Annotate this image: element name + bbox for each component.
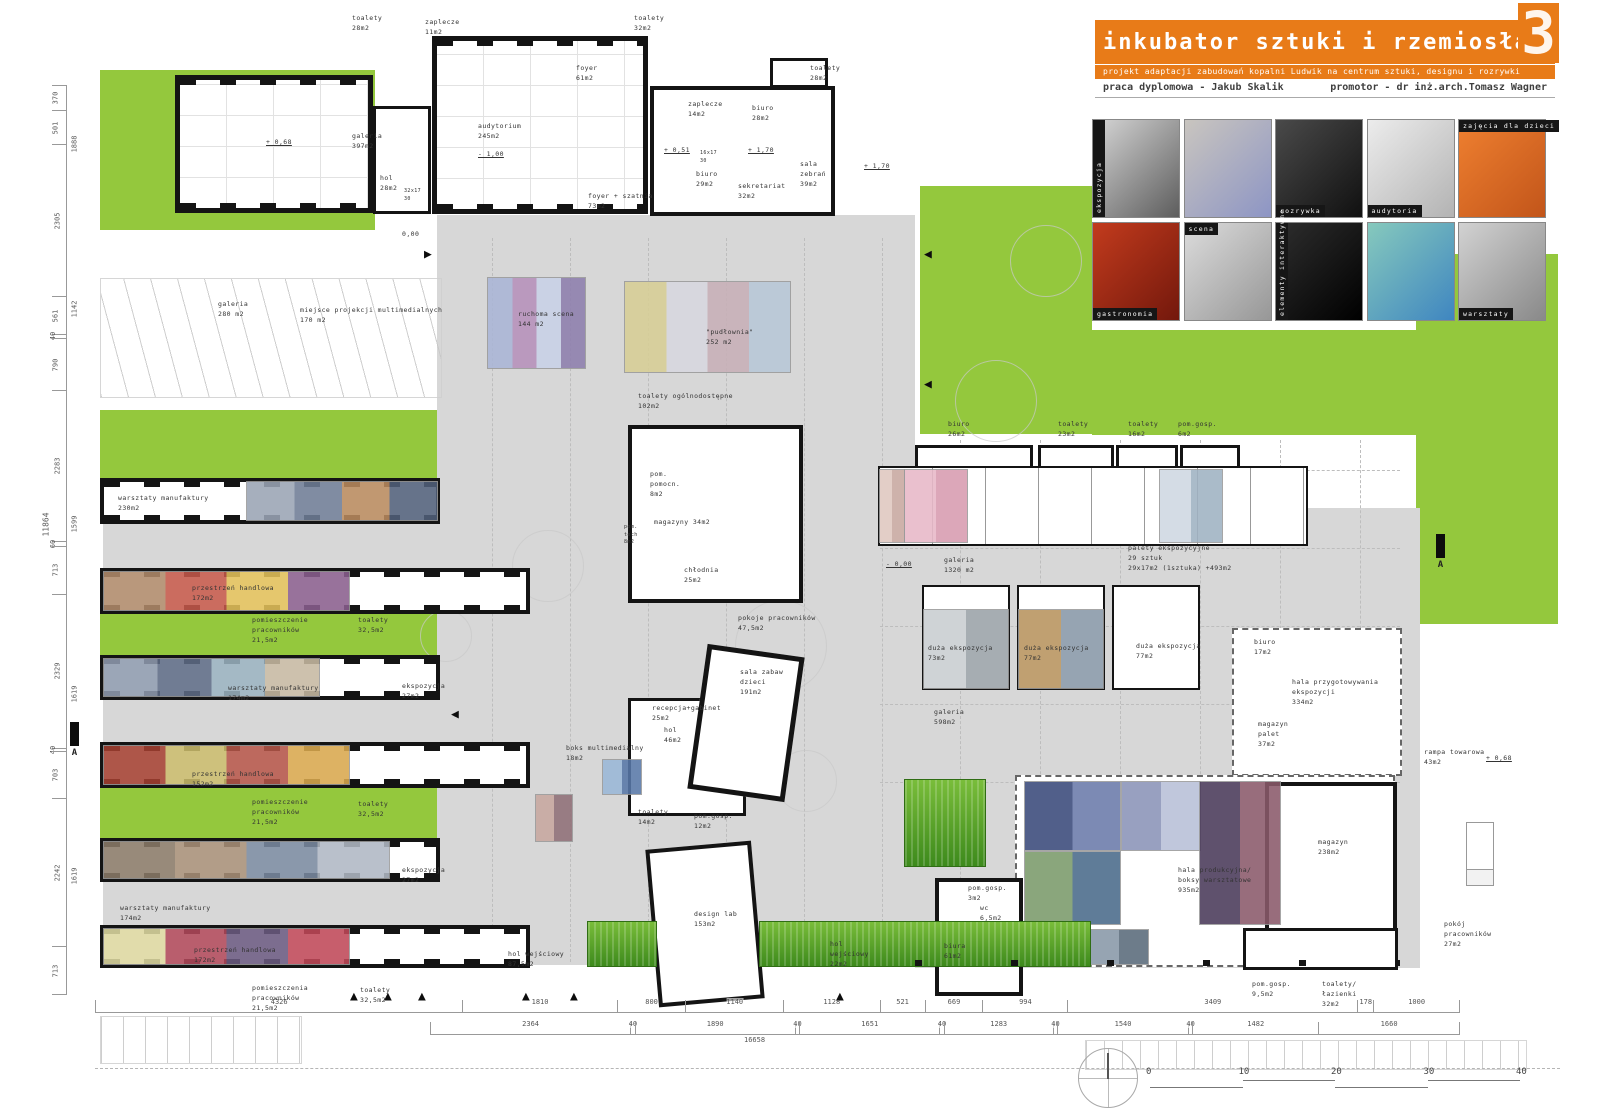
dimension-segment: 1660 [1318, 1022, 1460, 1034]
dimension-segment: 1000 [1373, 1000, 1460, 1012]
room-label: toalety 32,5m2 [358, 616, 388, 636]
dimension-segment: 703 [52, 751, 66, 798]
reference-photo-label: ekspozycja [1093, 120, 1105, 217]
room-label: design lab 153m2 [694, 910, 737, 930]
room-label: hol 46m2 [664, 726, 681, 746]
scale-tick-label: 10 [1239, 1067, 1250, 1077]
bottom-dimension-row2: 23644018904016514012834015404014821660 [430, 1022, 1460, 1035]
dimension-value: 1140 [726, 998, 743, 1006]
dimension-value: 713 [51, 564, 59, 577]
section-marker-label: A [70, 748, 79, 758]
dimension-value: 2364 [522, 1020, 539, 1028]
reference-photo-label: scena [1185, 223, 1219, 235]
dimension-value: 1651 [861, 1020, 878, 1028]
green-area [100, 410, 440, 478]
room-label: hol wejściowy 22m2 [830, 940, 869, 969]
dimension-segment: 1890 [635, 1022, 795, 1034]
reference-photo-label: gastronomia [1093, 308, 1157, 320]
interior-photo [536, 795, 572, 841]
dimension-segment: 178 [1357, 1000, 1373, 1012]
contour-circle [1010, 225, 1082, 297]
room-label: recepcja+gabinet 25m2 [652, 704, 721, 724]
interior-photo [1160, 470, 1222, 542]
building-outline [373, 106, 431, 214]
room-label: 0,00 [402, 230, 419, 240]
dimension-value: 2305 [53, 212, 61, 229]
room-label: pokoje pracowników 47,5m2 [738, 614, 816, 634]
dimension-segment: 2283 [52, 390, 66, 541]
dimension-segment: 994 [982, 1000, 1067, 1012]
interior-photo [1090, 930, 1148, 964]
dimension-segment: 1540 [1057, 1022, 1188, 1034]
room-label: + 1,70 [864, 162, 890, 172]
reference-photo [1185, 120, 1271, 217]
dimension-segment: 1810 [462, 1000, 616, 1012]
dimension-segment: 713 [52, 546, 66, 594]
room-label: miejsce projekcji multimedialnych 170 m2 [300, 306, 442, 326]
dimension-segment: 2329 [52, 594, 66, 748]
dimension-segment: 1651 [799, 1022, 939, 1034]
dimension-segment: 1128 [783, 1000, 880, 1012]
plaza-area [103, 700, 437, 742]
reference-photo: audytoria [1368, 120, 1454, 217]
room-label: + 0,51 [664, 146, 690, 156]
room-label: zaplecze 14m2 [688, 100, 723, 120]
dimension-value: 1890 [707, 1020, 724, 1028]
dimension-segment: 1140 [685, 1000, 783, 1012]
room-label: toalety 28m2 [352, 14, 382, 34]
room-label: + 0,68 [1486, 754, 1512, 764]
dimension-segment: 790 [52, 338, 66, 391]
poster-title: inkubator sztuki i rzemiosła [1095, 30, 1530, 55]
reference-photo-label: audytoria [1368, 205, 1422, 217]
room-label: przestrzeń handlowa 172m2 [192, 584, 274, 604]
dimension-value: 994 [1019, 998, 1032, 1006]
room-label: toalety 23m2 [1058, 420, 1088, 440]
room-label: palety ekspozycyjne 29 sztuk 29x17m2 (1s… [1128, 544, 1232, 573]
promoter-credit: promotor - dr inż.arch.Tomasz Wagner [1330, 82, 1547, 93]
scale-tick-label: 40 [1516, 1067, 1527, 1077]
entrance-arrow-icon: ▲ [384, 990, 392, 1003]
dimension-segment: 1482 [1192, 1022, 1318, 1034]
dimension-value: 713 [51, 964, 59, 977]
bottom-total-dimension: 16658 [744, 1036, 765, 1044]
dimension-segment: 3409 [1067, 1000, 1357, 1012]
room-label: sala zebrań 39m2 [800, 160, 826, 189]
reference-photo [1368, 223, 1454, 320]
dimension-value: 1619 [70, 686, 78, 703]
floor-plan-poster: toalety 28m2zaplecze 11m2toalety 32m2toa… [0, 0, 1600, 1120]
reference-photo: ekspozycja [1093, 120, 1179, 217]
room-label: sala zabaw dzieci 191m2 [740, 668, 783, 697]
plaza-area [103, 524, 437, 568]
room-label: zaplecze 11m2 [425, 18, 460, 38]
entrance-arrow-icon: ▲ [350, 990, 358, 1003]
dimension-segment: 800 [617, 1000, 686, 1012]
room-label: sekretariat 32m2 [738, 182, 785, 202]
dimension-value: 790 [51, 358, 59, 371]
room-label: galeria 1320 m2 [944, 556, 974, 576]
section-marker-bar [70, 722, 79, 746]
interior-photo [1025, 782, 1120, 850]
reference-photo-label: warsztaty [1459, 308, 1513, 320]
dimension-segment: 713 [52, 946, 66, 995]
room-label: przestrzeń handlowa 172m2 [194, 946, 276, 966]
dimension-segment: 2364 [430, 1022, 630, 1034]
grid-line [804, 238, 805, 962]
reference-photo: rozrywka [1276, 120, 1362, 217]
room-label: pom.gosp. 3m2 [968, 884, 1007, 904]
room-label: duża ekspozycja 77m2 [1024, 644, 1089, 664]
dimension-value: 2283 [53, 458, 61, 475]
dimension-segment: 501 [52, 110, 66, 144]
entrance-arrow-icon: ◀ [451, 708, 459, 721]
dimension-value: 800 [645, 998, 658, 1006]
dimension-value: 3409 [1204, 998, 1221, 1006]
room-label: ekspozycja 27m2 [402, 866, 445, 886]
left-dimension-chain: 3705012305561407902283607132329407032242… [52, 85, 67, 995]
scale-tick-label: 30 [1424, 1067, 1435, 1077]
grass-strip [588, 922, 656, 966]
room-label: warsztaty manufaktury 174m2 [228, 684, 319, 704]
room-label: pom.gosp. 9,5m2 [1252, 980, 1291, 1000]
dimension-value: 1599 [70, 516, 78, 533]
interior-photo [603, 760, 641, 794]
room-label: magazyn 238m2 [1318, 838, 1348, 858]
room-label: galeria 280 m2 [218, 300, 248, 320]
room-label: galeria 598m2 [934, 708, 964, 728]
room-label: chłodnia 25m2 [684, 566, 719, 586]
sheet-number: 3 [1518, 3, 1559, 63]
delivery-truck-icon [1466, 822, 1494, 870]
scale-bar-segment [1243, 1080, 1336, 1088]
dimension-segment: 669 [925, 1000, 983, 1012]
interior-photo [625, 282, 790, 372]
colonnade-dots [915, 960, 1400, 966]
entrance-arrow-icon: ▶ [424, 248, 432, 261]
room-label: hala przygotowywania ekspozycji 334m2 [1292, 678, 1378, 707]
room-label: pom.gosp. 6m2 [1178, 420, 1217, 440]
parking-pattern [1085, 1040, 1527, 1070]
room-label: + 1,70 [748, 146, 774, 156]
section-marker-bar [1436, 534, 1445, 558]
interior-photo [1122, 782, 1200, 850]
dimension-value: 501 [51, 121, 59, 134]
room-label: foyer 61m2 [576, 64, 598, 84]
grid-line [882, 238, 883, 962]
room-label: toalety 14m2 [638, 808, 668, 828]
compass-needle-icon [1107, 1053, 1109, 1079]
dimension-segment: 2242 [52, 798, 66, 946]
room-label: boks multimedialny 18m2 [566, 744, 644, 764]
title-block: inkubator sztuki i rzemiosła 3 projekt a… [1095, 2, 1555, 98]
room-label: przestrzeń handlowa 152m2 [192, 770, 274, 790]
interior-photo [1200, 782, 1280, 924]
room-label: hol wejściowy 87,5m2 [508, 950, 564, 970]
entrance-arrow-icon: ▲ [418, 990, 426, 1003]
dimension-value: 1619 [70, 868, 78, 885]
room-label: magazyn palet 37m2 [1258, 720, 1288, 749]
room-label: biuro 17m2 [1254, 638, 1276, 658]
dimension-segment: 561 [52, 296, 66, 334]
room-label: 16x17 30 [700, 150, 717, 165]
scale-bar-segment [1428, 1080, 1521, 1088]
room-label: pokój pracowników 27m2 [1444, 920, 1491, 949]
entrance-arrow-icon: ▲ [522, 990, 530, 1003]
room-label: biuro 26m2 [948, 420, 970, 440]
grass-strip [905, 780, 985, 866]
dimension-value: 1142 [70, 301, 78, 318]
room-label: duża ekspozycja 73m2 [928, 644, 993, 664]
room-label: toalety 32,5m2 [358, 800, 388, 820]
parking-pattern [100, 278, 442, 398]
dimension-value: 703 [51, 769, 59, 782]
room-label: pom. tech 8m2 [624, 524, 638, 547]
section-marker: A [1436, 534, 1445, 570]
dimension-value: 1283 [990, 1020, 1007, 1028]
room-label: warsztaty manufaktury 230m2 [118, 494, 209, 514]
dimension-value: 1888 [70, 136, 78, 153]
reference-photo: warsztaty [1459, 223, 1545, 320]
scale-bar-segment [1335, 1080, 1428, 1088]
compass-icon [1078, 1048, 1138, 1108]
room-label: duża ekspozycja 77m2 [1136, 642, 1201, 662]
room-label: hol 28m2 [380, 174, 397, 194]
poster-subtitle: projekt adaptacji zabudowań kopalni Ludw… [1095, 65, 1555, 79]
reference-photo: elementy interaktywne [1276, 223, 1362, 320]
room-label: rampa towarowa 43m2 [1424, 748, 1484, 768]
author-credit: praca dyplomowa - Jakub Skalik [1103, 82, 1284, 93]
section-marker-label: A [1436, 560, 1445, 570]
dimension-value: 1540 [1115, 1020, 1132, 1028]
scale-bar: 010203040 [1150, 1080, 1520, 1088]
dimension-segment: 2305 [52, 144, 66, 296]
interior-photo [905, 470, 967, 542]
room-label: hala produkcyjna/ boksy warsztatowe 935m… [1178, 866, 1251, 895]
interior-photo [104, 842, 389, 878]
room-label: pomieszczenia pracowników 21,5m2 [252, 984, 308, 1013]
dimension-value: 521 [896, 998, 909, 1006]
truck-cab-icon [1466, 869, 1494, 886]
room-label: toalety 16m2 [1128, 420, 1158, 440]
interior-photo [880, 470, 904, 542]
credits-row: praca dyplomowa - Jakub Skalik promotor … [1095, 79, 1555, 98]
building-outline [432, 36, 648, 214]
interior-photo [1025, 852, 1120, 924]
room-label: toalety ogólnodostępne 102m2 [638, 392, 733, 412]
reference-photo: scena [1185, 223, 1271, 320]
reference-photo: zajęcia dla dzieci [1459, 120, 1545, 217]
dimension-value: 178 [1359, 998, 1372, 1006]
building-outline [1112, 585, 1200, 690]
entrance-arrow-icon: ▲ [570, 990, 578, 1003]
room-label: biuro 28m2 [752, 104, 774, 124]
scale-bar-segment [1150, 1080, 1243, 1088]
dimension-segment: 370 [52, 85, 66, 110]
room-label: - 0,00 [886, 560, 912, 570]
entrance-arrow-icon: ▲ [836, 990, 844, 1003]
entrance-arrow-icon: ◀ [924, 248, 932, 261]
section-marker: A [70, 722, 79, 758]
dimension-value: 370 [51, 92, 59, 105]
room-label: galeria 397m2 [352, 132, 382, 152]
reference-photo: gastronomia [1093, 223, 1179, 320]
reference-photo-label: elementy interaktywne [1276, 223, 1288, 320]
room-label: pom. pomocn. 8m2 [650, 470, 680, 499]
dimension-value: 1482 [1247, 1020, 1264, 1028]
reference-photo-label: zajęcia dla dzieci [1459, 120, 1559, 132]
dimension-value: 561 [51, 309, 59, 322]
room-label: audytorium 245m2 [478, 122, 521, 142]
title-banner: inkubator sztuki i rzemiosła 3 [1095, 20, 1555, 64]
dimension-segment: 521 [880, 1000, 925, 1012]
room-label: + 0,68 [266, 138, 292, 148]
left-total-dimension: 11864 [42, 512, 51, 536]
interior-photo [247, 482, 437, 520]
room-label: toalety 28m2 [810, 64, 840, 84]
dimension-value: 2329 [53, 663, 61, 680]
room-label: pom.gosp. 12m2 [694, 812, 733, 832]
room-label: wc 6,5m2 [980, 904, 1002, 924]
room-label: - 1,00 [478, 150, 504, 160]
room-label: warsztaty manufaktury 174m2 [120, 904, 211, 924]
dimension-value: 669 [948, 998, 961, 1006]
room-label: magazyny 34m2 [654, 518, 710, 528]
dimension-value: 2242 [53, 864, 61, 881]
room-label: ekspozycja 27m2 [402, 682, 445, 702]
room-label: biuro 29m2 [696, 170, 718, 190]
room-label: foyer + szatnia 73m2 [588, 192, 653, 212]
dimension-value: 1660 [1381, 1020, 1398, 1028]
room-label: biura 61m2 [944, 942, 966, 962]
room-label: pomieszczenie pracowników 21,5m2 [252, 798, 308, 827]
room-label: ruchoma scena 144 m2 [518, 310, 574, 330]
dimension-value: 1810 [532, 998, 549, 1006]
room-label: 32x17 30 [404, 188, 421, 203]
entrance-arrow-icon: ◀ [924, 378, 932, 391]
room-label: pomieszczenie pracowników 21,5m2 [252, 616, 308, 645]
room-label: "pudłownia" 252 m2 [706, 328, 753, 348]
scale-tick-label: 0 [1146, 1067, 1151, 1077]
dimension-segment: 1283 [944, 1022, 1053, 1034]
scale-tick-label: 20 [1331, 1067, 1342, 1077]
parking-pattern [100, 1016, 302, 1064]
dimension-value: 1000 [1408, 998, 1425, 1006]
room-label: toalety 32m2 [634, 14, 664, 34]
room-label: toalety/ łazienki 32m2 [1322, 980, 1357, 1009]
